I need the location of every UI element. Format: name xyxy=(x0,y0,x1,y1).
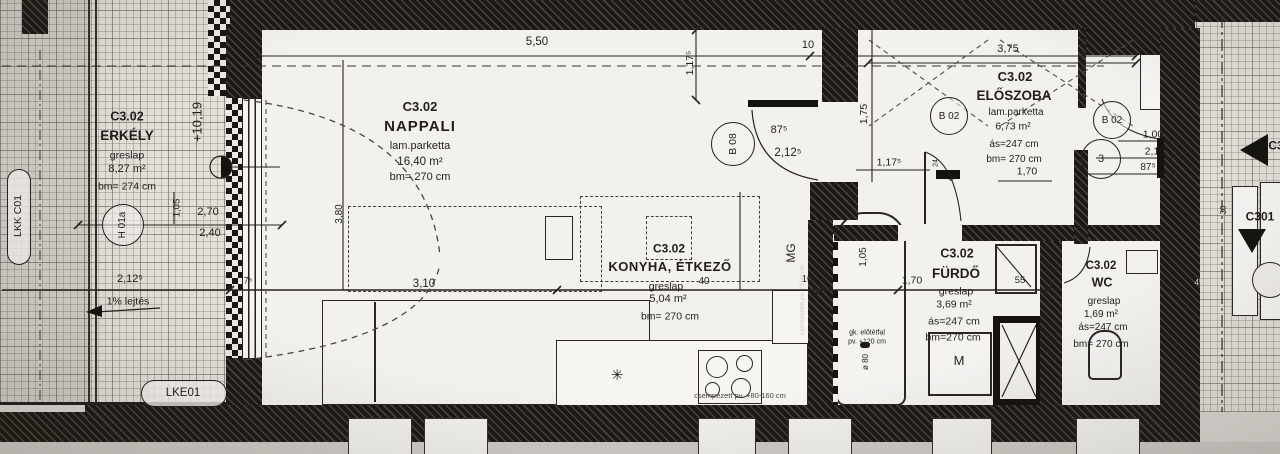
dim-240: 2,40 xyxy=(199,228,220,240)
door-tag-b02: B 02 xyxy=(930,97,968,135)
dim-310: 3,10 xyxy=(413,278,435,290)
dim-170-hall: 1,70 xyxy=(1017,166,1037,177)
room-finish: lam.parketta xyxy=(988,108,1043,119)
room-height: bm= 270 cm xyxy=(986,155,1041,166)
room-code: C3.02 xyxy=(1086,260,1117,272)
dim-24: 24 xyxy=(933,159,940,167)
room-name-nappali: NAPPALI xyxy=(384,119,456,135)
tiling-note-bottom: csempézett pv. +80-160 cm xyxy=(694,392,786,400)
door-tag-sub: 3 xyxy=(1081,139,1121,179)
dim-270: 2,70 xyxy=(197,207,218,219)
level-marker-text: +10,19 xyxy=(191,102,204,142)
dim-875: 87⁵ xyxy=(771,125,788,137)
room-name-eloszoba: ELŐSZOBA xyxy=(976,89,1051,103)
dim-30: 30 xyxy=(1220,206,1228,215)
tiling-note-side: csempézett pv. +160 cm xyxy=(800,265,807,335)
dim-1175-h: 1,17⁵ xyxy=(877,157,902,168)
dim-10: 10 xyxy=(802,40,814,52)
dim-105-erkely: 1,05 xyxy=(172,199,182,218)
sink-symbol-icon: ✳ xyxy=(611,368,624,384)
dim-2125: 2,12⁵ xyxy=(774,147,801,159)
room-name-wc: WC xyxy=(1092,276,1113,289)
door-tag-b08: B 08 xyxy=(711,122,755,166)
room-finish: greslap xyxy=(939,286,973,297)
dim-dia80: ø 80 xyxy=(862,354,870,370)
room-height: bm= 270 cm xyxy=(390,172,451,184)
room-area: 8,27 m² xyxy=(108,164,145,176)
room-area: 5,04 m² xyxy=(649,294,686,306)
washing-machine-label: M xyxy=(954,354,965,368)
room-code: C3.02 xyxy=(653,243,685,256)
dim-170-bath: 1,70 xyxy=(902,275,922,286)
dim-175: 1,75 xyxy=(859,104,870,124)
room-ceiling: ás=247 cm xyxy=(989,140,1038,151)
room-finish: greslap xyxy=(649,281,683,292)
room-finish: greslap xyxy=(1088,297,1121,308)
dim-64: 64 xyxy=(949,173,956,181)
room-ceiling: ás=247 cm xyxy=(1078,323,1127,334)
room-code: C3.02 xyxy=(403,100,438,114)
floor-plan: C3.02 ERKÉLY greslap 8,27 m² bm= 274 cm … xyxy=(0,0,1280,454)
room-name-erkely: ERKÉLY xyxy=(100,129,154,143)
dim-105-bath: 1,05 xyxy=(859,247,869,266)
plasterboard-note-1: gk. előtétfal xyxy=(849,329,885,336)
dishwasher-label: MG xyxy=(785,243,797,262)
room-area: 6,73 m² xyxy=(995,121,1031,132)
room-height: bm= 274 cm xyxy=(98,181,156,192)
room-area: 1,69 m² xyxy=(1084,310,1118,321)
room-area: 3,69 m² xyxy=(936,299,972,310)
dim-40: 40 xyxy=(698,277,709,288)
room-code: C3.02 xyxy=(940,247,973,260)
room-name-konyha: KONYHA, ÉTKEZŐ xyxy=(608,260,731,274)
room-finish: lam.parketta xyxy=(390,141,451,153)
dim-2125-erkely: 2,12⁵ xyxy=(117,274,143,286)
dim-550: 5,50 xyxy=(526,36,548,48)
door-tag-h01a: H 01a xyxy=(102,204,144,246)
dim-55: 55 xyxy=(1015,276,1026,286)
room-height: bm=270 cm xyxy=(925,332,980,343)
dim-875-entry: 87⁵ xyxy=(1140,163,1155,174)
slope-note: 1% lejtés xyxy=(107,296,150,307)
ref-label-lkk: LKK C01 xyxy=(13,195,24,237)
room-name-furdo: FÜRDŐ xyxy=(932,267,980,281)
room-height: bm= 270 cm xyxy=(1073,340,1128,351)
dim-75: 7⁵ xyxy=(244,276,253,285)
room-code: C3.02 xyxy=(998,70,1033,84)
room-code: C3.02 xyxy=(110,110,143,123)
room-ceiling: ás=247 cm xyxy=(928,316,980,327)
door-tag-b02b: B 02 xyxy=(1093,101,1131,139)
section-marker-c3: C3 xyxy=(1268,140,1280,153)
dim-100: 1,00 xyxy=(1143,129,1163,140)
dim-2125-entry: 2,12⁵ xyxy=(1145,146,1170,157)
dim-375: 3,75 xyxy=(997,44,1018,56)
room-height: bm= 270 cm xyxy=(641,311,699,322)
plasterboard-note-2: pv. +120 cm xyxy=(848,338,886,345)
room-finish: greslap xyxy=(110,150,144,161)
dim-45: 45 xyxy=(1195,279,1204,287)
section-marker-c301: C301 xyxy=(1246,211,1275,224)
dim-380: 3,80 xyxy=(335,204,345,223)
dim-1175-v: 1,17⁵ xyxy=(685,51,696,76)
room-area: 16,40 m² xyxy=(397,156,442,168)
ref-label-lke: LKE01 xyxy=(166,387,201,399)
